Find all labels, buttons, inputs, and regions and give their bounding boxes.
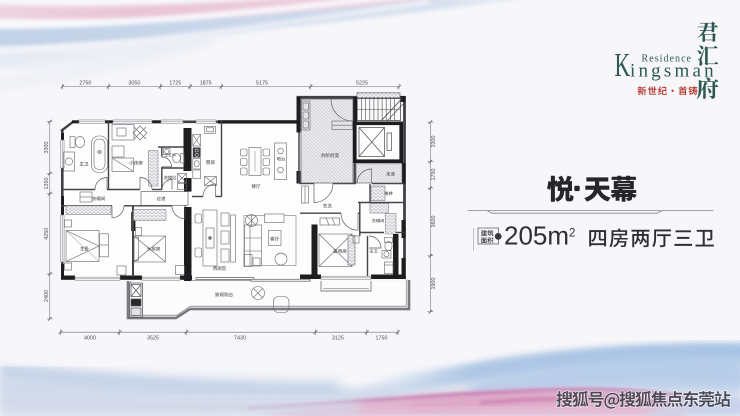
svg-text:1900: 1900: [431, 278, 437, 290]
svg-text:205m2: 205m2: [504, 221, 575, 251]
svg-text:5225: 5225: [356, 80, 368, 86]
svg-text:1750: 1750: [431, 169, 437, 181]
svg-text:1750: 1750: [376, 335, 388, 341]
svg-text:3600: 3600: [431, 216, 437, 228]
svg-text:3525: 3525: [147, 335, 159, 341]
svg-text:K: K: [615, 47, 631, 84]
svg-text:3050: 3050: [128, 80, 140, 86]
svg-text:2750: 2750: [79, 80, 91, 86]
svg-text:ingsman: ingsman: [630, 61, 717, 82]
svg-text:7430: 7430: [234, 335, 246, 341]
svg-text:5175: 5175: [256, 80, 268, 86]
svg-text:3300: 3300: [44, 142, 50, 154]
svg-text:4000: 4000: [84, 335, 96, 341]
svg-text:1350: 1350: [44, 178, 50, 190]
svg-text:2400: 2400: [44, 290, 50, 302]
svg-text:4250: 4250: [44, 228, 50, 240]
svg-text:3125: 3125: [332, 335, 344, 341]
svg-text:3300: 3300: [431, 136, 437, 148]
svg-text:1725: 1725: [169, 80, 181, 86]
svg-text:1875: 1875: [200, 80, 212, 86]
